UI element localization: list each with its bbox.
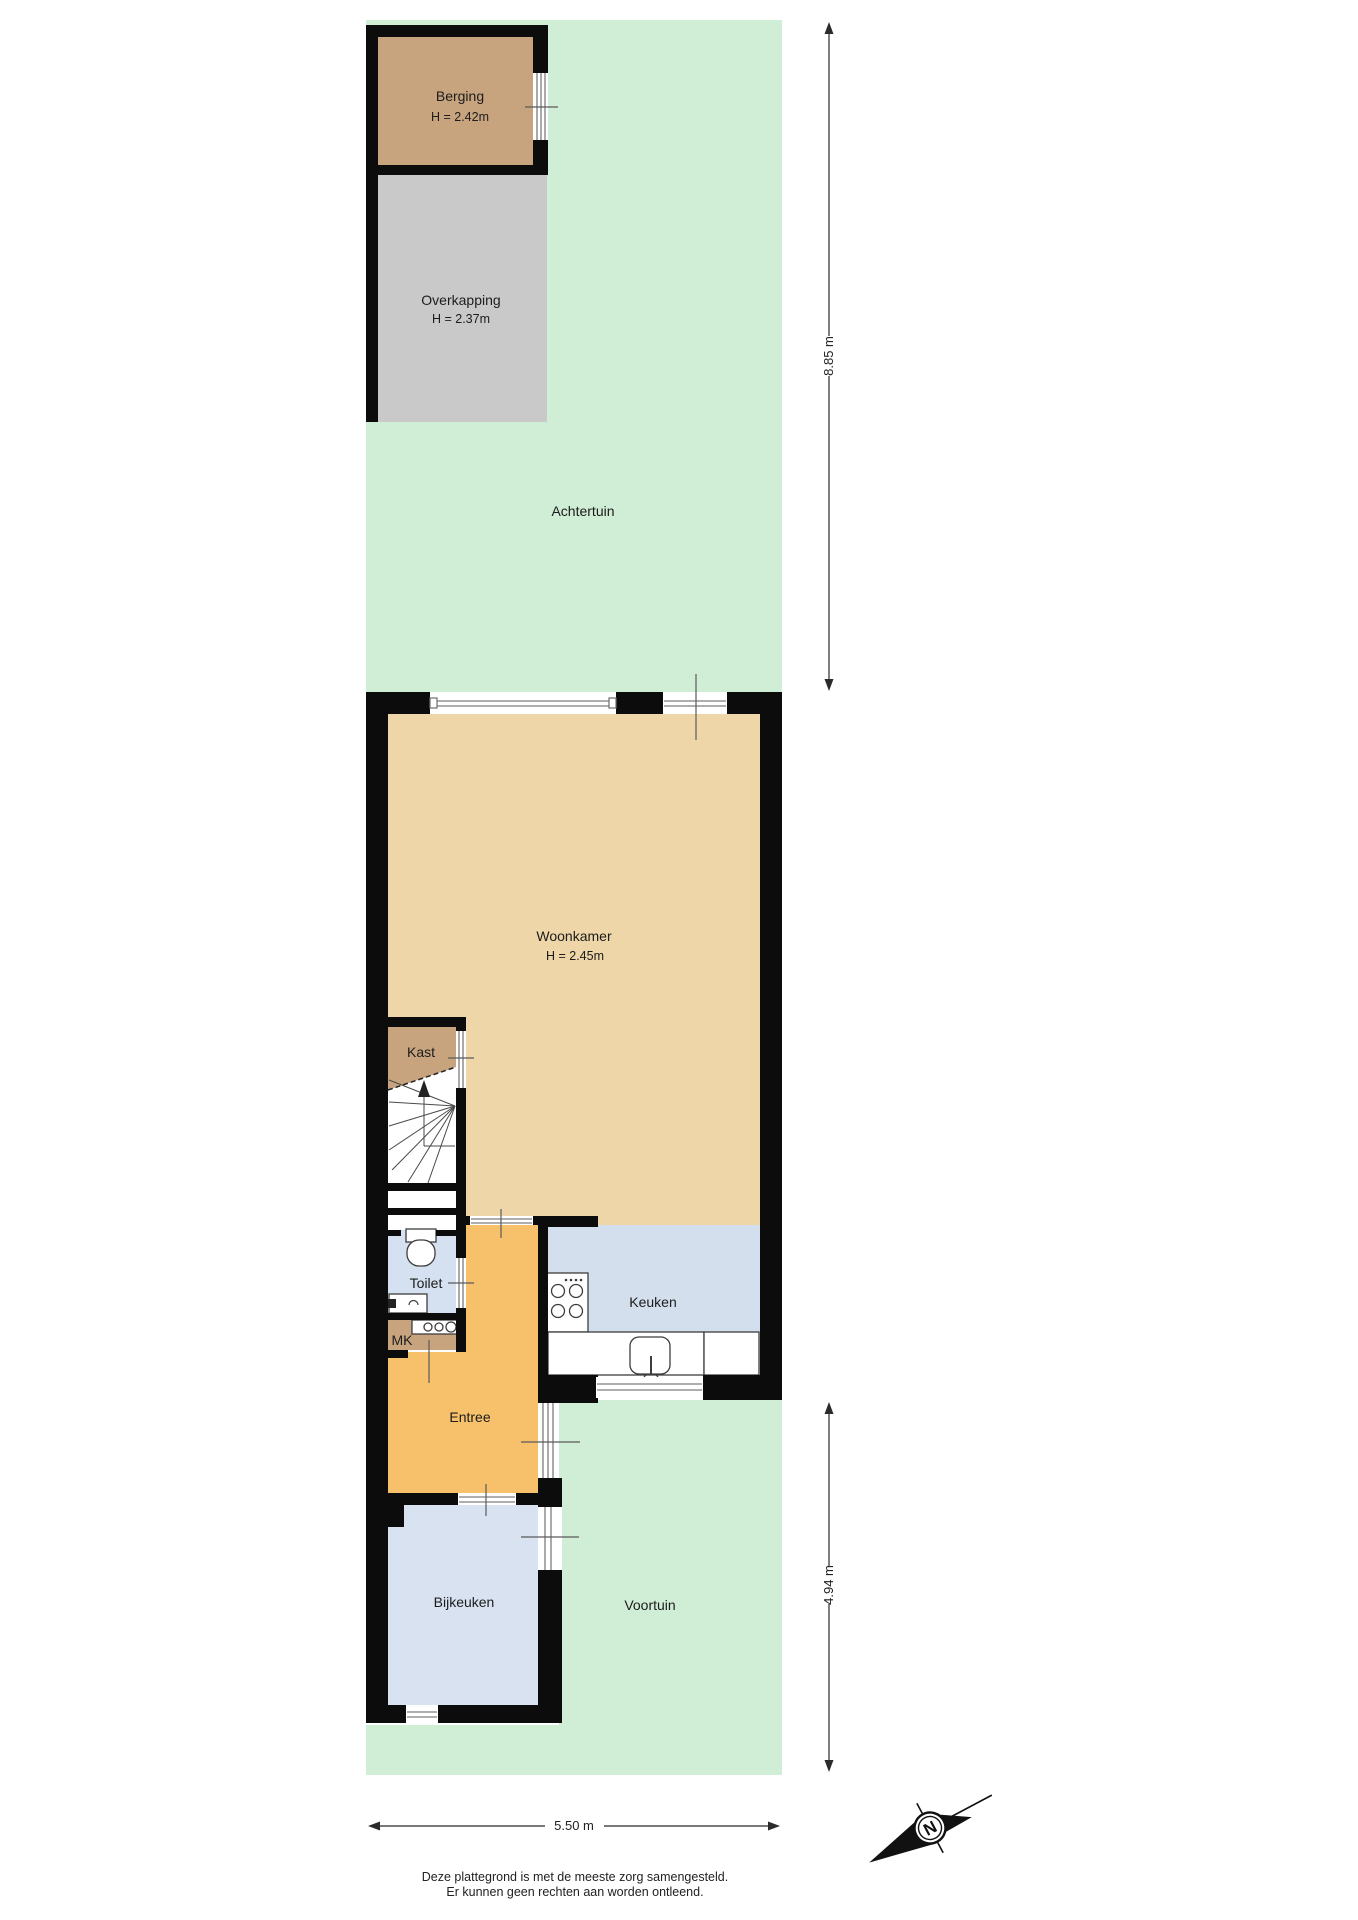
woonkamer-label: Woonkamer xyxy=(536,928,612,944)
house-wall-left xyxy=(366,692,388,1723)
dimension-arrow-right xyxy=(768,1822,780,1831)
keuken-wall-bottom-right xyxy=(703,1375,782,1400)
stove xyxy=(546,1273,588,1332)
bijkeuken-wall-bottom-left xyxy=(366,1705,406,1723)
floorplan-canvas: Achtertuin Voortuin Berging H = 2.42m Ov… xyxy=(0,0,1358,1920)
compass-rose: N xyxy=(855,1770,1005,1885)
stove-burner xyxy=(570,1285,583,1298)
outbuildings: Berging H = 2.42m Overkapping H = 2.37m xyxy=(366,25,558,422)
meterkast-wall-bottom xyxy=(388,1350,408,1358)
meter-dial xyxy=(446,1322,456,1332)
voortuin-label: Voortuin xyxy=(624,1597,675,1613)
niche-under-stairs xyxy=(388,1191,456,1208)
width-value: 5.50 m xyxy=(554,1818,594,1833)
kast-label: Kast xyxy=(407,1044,435,1060)
bijkeuken-wall-right xyxy=(538,1570,562,1723)
stove-burner xyxy=(552,1305,565,1318)
meter-dial xyxy=(424,1323,432,1331)
garden-depth-value: 8.85 m xyxy=(821,336,836,376)
bijkeuken-label: Bijkeuken xyxy=(434,1594,495,1610)
house-wall-right xyxy=(760,692,782,1400)
niche-divider-wall xyxy=(388,1208,456,1215)
stove-knob xyxy=(570,1279,573,1282)
kast-wall-top xyxy=(366,1017,466,1027)
toilet-sink-tap xyxy=(387,1299,396,1308)
entree-keuken-divider-wall xyxy=(538,1216,548,1380)
berging-overkapping-wall-left xyxy=(366,25,378,422)
stove-burner xyxy=(570,1305,583,1318)
dimension-arrow-down xyxy=(825,679,834,691)
dimension-arrow-down xyxy=(825,1760,834,1772)
keuken-wall-bottom-left xyxy=(538,1375,598,1403)
achtertuin-label: Achtertuin xyxy=(551,503,614,519)
berging-wall-bottom xyxy=(366,165,548,175)
keuken-label: Keuken xyxy=(629,1294,676,1310)
overkapping-label: Overkapping xyxy=(421,292,500,308)
overkapping-height-label: H = 2.37m xyxy=(432,312,490,326)
stairs-toilet-wall-right xyxy=(456,1088,466,1258)
dimension-arrow-left xyxy=(368,1822,380,1831)
bijkeuken-window-right xyxy=(538,1507,562,1570)
entree-doorway-wall-right xyxy=(533,1216,538,1225)
kitchen-counter-right xyxy=(704,1332,759,1375)
voortuin-area-right xyxy=(559,1400,782,1775)
dimension-front-depth: 4.94 m xyxy=(821,1402,836,1772)
floorplan-page: Achtertuin Voortuin Berging H = 2.42m Ov… xyxy=(0,0,1358,1920)
bijkeuken-wall-bottom-right xyxy=(438,1705,562,1723)
footer-disclaimer: Deze plattegrond is met de meeste zorg s… xyxy=(422,1870,728,1899)
dimension-garden-depth: 8.85 m xyxy=(821,22,836,691)
entree-bijkeuken-wall-left xyxy=(366,1493,458,1505)
window-end-cap xyxy=(430,698,437,708)
toilet-wall-top-right xyxy=(436,1230,456,1236)
berging-label: Berging xyxy=(436,88,484,104)
stove-knob xyxy=(580,1279,583,1282)
woonkamer-window-small xyxy=(663,694,727,712)
entree-bijkeuken-door xyxy=(458,1493,516,1505)
woonkamer-height-label: H = 2.45m xyxy=(546,949,604,963)
voortuin-area-bottom xyxy=(366,1725,562,1775)
niche-above-toilet xyxy=(388,1215,456,1230)
stove-knob xyxy=(565,1279,568,1282)
kast-wall-right-upper xyxy=(456,1017,466,1031)
disclaimer-line-2: Er kunnen geen rechten aan worden ontlee… xyxy=(446,1885,703,1899)
bijkeuken-window-bottom xyxy=(406,1707,438,1721)
entree-doorway-wall-left xyxy=(456,1216,470,1225)
disclaimer-line-1: Deze plattegrond is met de meeste zorg s… xyxy=(422,1870,728,1884)
meterkast-label: MK xyxy=(392,1332,414,1348)
dimension-width: 5.50 m xyxy=(368,1818,780,1833)
dimension-arrow-up xyxy=(825,1402,834,1414)
woonkamer-window-large xyxy=(430,694,616,712)
toilet-label: Toilet xyxy=(410,1275,443,1291)
meter-dial xyxy=(435,1323,443,1331)
window-end-cap xyxy=(609,698,616,708)
entree-bijkeuken-wall-right xyxy=(516,1493,538,1505)
kitchen-counter xyxy=(548,1332,704,1375)
stairs-wall-bottom xyxy=(366,1183,466,1191)
entree-label: Entree xyxy=(449,1409,490,1425)
kast-door-opening xyxy=(456,1031,466,1088)
berging-wall-top xyxy=(366,25,548,37)
front-door-wall-block xyxy=(538,1478,562,1507)
house-wall-top-left xyxy=(366,692,430,714)
berging-wall-right-upper xyxy=(533,25,548,73)
toilet-wall-top-left xyxy=(388,1230,401,1236)
berging-height-label: H = 2.42m xyxy=(431,110,489,124)
stove-burner xyxy=(552,1285,565,1298)
dimension-arrow-up xyxy=(825,22,834,34)
keuken-window-bottom xyxy=(596,1377,703,1398)
bijkeuken-wall-notch xyxy=(388,1505,404,1527)
toilet-bowl xyxy=(407,1240,435,1266)
entree-floor-upper xyxy=(466,1225,538,1355)
house-wall-top-pier xyxy=(616,692,663,714)
stove-knob xyxy=(575,1279,578,1282)
toilet-wall-bottom xyxy=(388,1313,466,1320)
front-depth-value: 4.94 m xyxy=(821,1565,836,1605)
